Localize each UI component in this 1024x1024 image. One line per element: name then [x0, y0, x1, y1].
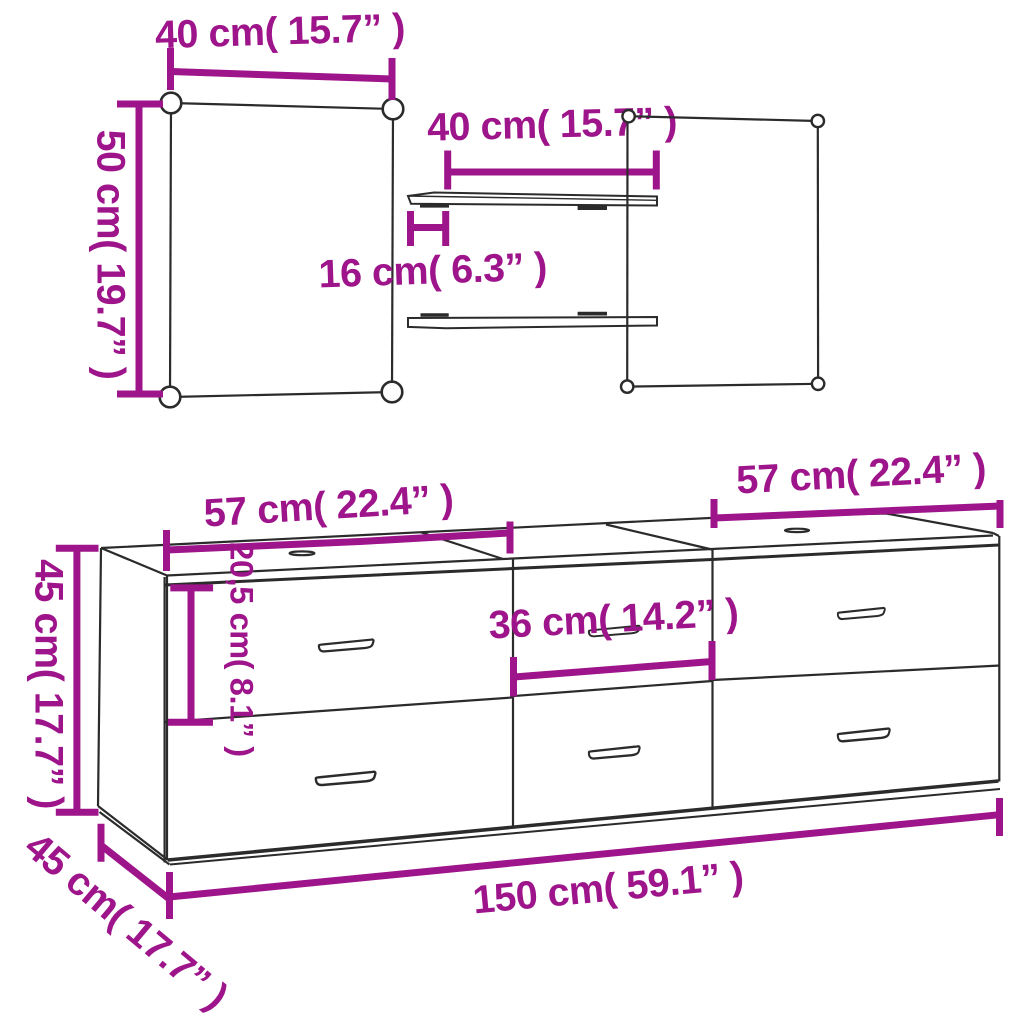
svg-text:50 cm( 19.7” ): 50 cm( 19.7” ): [89, 130, 133, 380]
svg-text:40 cm( 15.7” ): 40 cm( 15.7” ): [154, 6, 405, 57]
svg-text:20,5 cm( 8.1” ): 20,5 cm( 8.1” ): [224, 542, 260, 756]
svg-text:40 cm( 15.7” ): 40 cm( 15.7” ): [427, 99, 678, 150]
svg-text:45 cm( 17.7” ): 45 cm( 17.7” ): [27, 559, 71, 809]
svg-text:16 cm( 6.3” ): 16 cm( 6.3” ): [318, 245, 548, 297]
